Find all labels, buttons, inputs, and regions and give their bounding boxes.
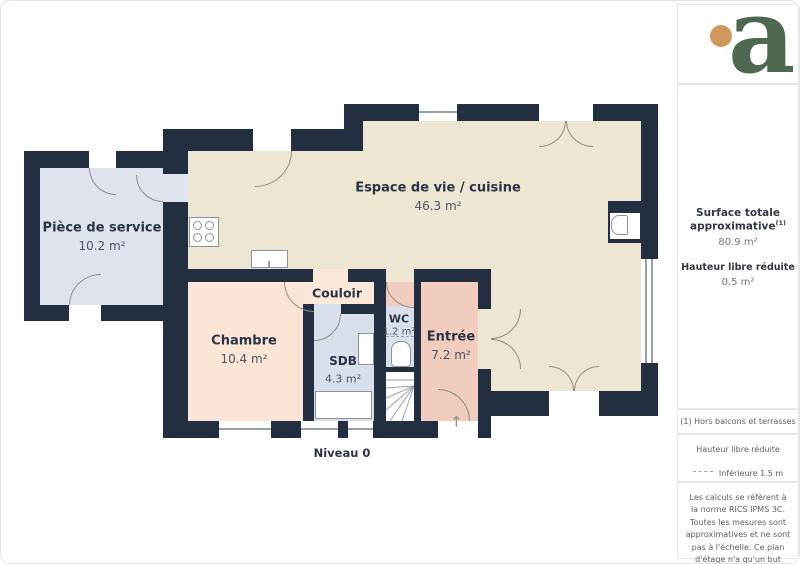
door-opening [549,391,599,416]
room-area-entree: 7.2 m² [431,348,470,362]
agency-logo: a [678,5,799,84]
door-opening [478,309,491,369]
room-label-sdb: SDB [329,354,357,368]
window-glazing [645,259,647,363]
stove-burner-icon [205,221,214,230]
logo-card: a [677,4,799,84]
room-label-entree: Entrée [427,330,475,345]
door-opening [539,104,593,121]
legend-card: Hauteur libre réduite Inférieure 1.5 m [677,434,799,482]
kitchen-sink-icon [251,250,288,268]
window [348,421,373,438]
window-glazing [348,428,373,430]
stove-burner-icon [193,233,202,242]
room-area-chambre: 10.4 m² [220,352,267,366]
wall-segment [24,151,40,321]
wall-segment [188,269,313,282]
niche-window-icon [611,215,628,235]
window [641,259,658,363]
wall-segment [414,269,481,282]
toilet-icon [391,341,411,367]
reduced-height-value: 0.5 m² [678,277,798,288]
door-opening [253,129,291,151]
window-glazing [651,259,653,363]
footnote-text: (1) Hors balcons et terrasses [678,417,798,426]
niche-window-icon [610,213,640,239]
floorplan-canvas: ↑ Pièce de service 10.2 m² Espace de vie… [1,1,656,564]
room-label-living: Espace de vie / cuisine [355,181,521,196]
disclaimer-text: Les calculs se réfèrent à la norme RICS … [685,492,791,564]
room-label-chambre: Chambre [211,334,277,349]
stove-burner-icon [205,233,214,242]
legend-title: Hauteur libre réduite [678,445,798,454]
window [219,421,271,438]
wall-segment [348,269,386,282]
room-area-living: 46.3 m² [414,199,461,213]
surface-total-title: Surface totale approximative(1) [678,207,798,233]
legend-value: Inférieure 1.5 m [719,469,783,478]
stove-icon [189,217,219,247]
dashed-line-legend-icon [693,471,713,472]
wall-segment [344,104,363,151]
wall-segment [374,282,386,421]
footnote-marker: (1) [776,219,786,227]
door-opening [69,305,101,321]
window [301,421,338,438]
disclaimer-card: Les calculs se réfèrent à la norme RICS … [677,482,799,559]
wall-segment [344,104,658,121]
door-opening [89,151,116,168]
entrance-arrow-icon: ↑ [450,415,463,430]
door-opening [313,269,348,282]
door-opening [163,174,188,202]
door-opening [314,304,341,314]
kitchen-sink-icon [268,261,270,268]
surface-total-value: 80.9 m² [678,237,798,248]
door-opening [386,269,414,282]
window-glazing [301,428,338,430]
measurements-card: Surface totale approximative(1) 80.9 m² … [677,84,799,409]
wall-segment [24,305,186,321]
stove-burner-icon [193,221,202,230]
window-glazing [219,428,271,430]
logo-letter: a [728,5,795,84]
bathroom-sink-icon [358,333,374,365]
room-label-couloir: Couloir [312,286,362,301]
room-label-wc: WC [389,313,409,326]
room-area-service: 10.2 m² [78,239,125,253]
floorplan-page: ↑ Pièce de service 10.2 m² Espace de vie… [0,0,800,564]
room-label-service: Pièce de service [43,221,162,236]
level-label: Niveau 0 [314,446,371,460]
room-area-wc: 1.2 m² [383,327,416,338]
window [419,104,457,121]
room-area-sdb: 4.3 m² [325,373,361,386]
window-glazing [419,111,457,113]
reduced-height-title: Hauteur libre réduite [678,262,798,273]
stairs-icon [386,372,414,421]
wall-segment [303,304,314,421]
footnote-card: (1) Hors balcons et terrasses [677,409,799,434]
shower-icon [315,391,372,419]
wall-segment [414,282,421,438]
